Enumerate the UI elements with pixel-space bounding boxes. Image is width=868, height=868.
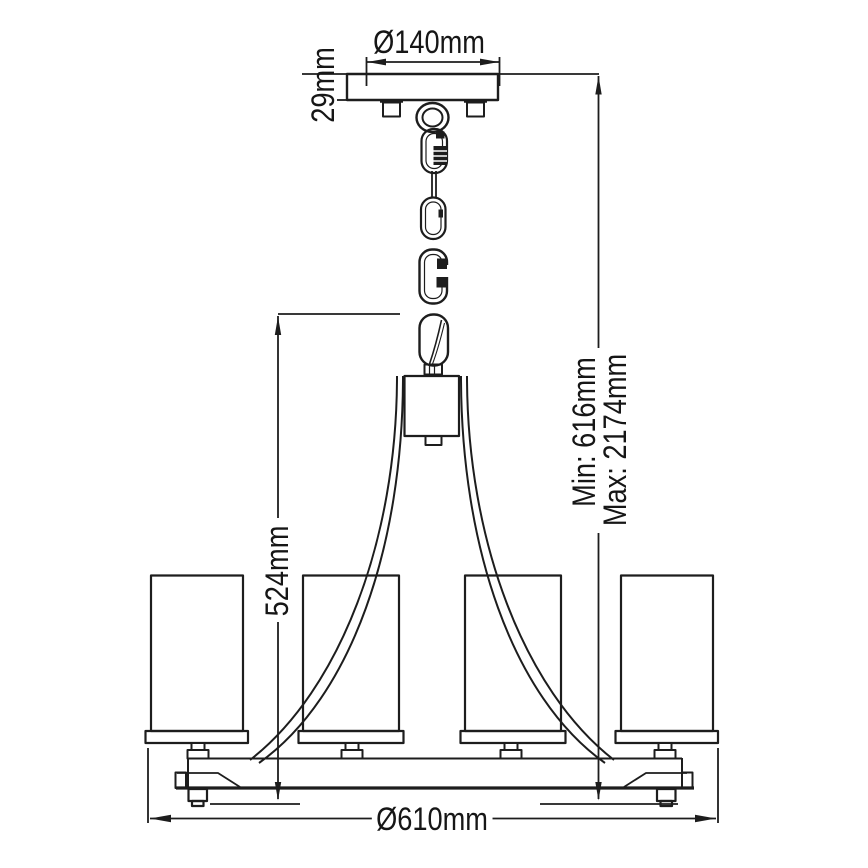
frame-ring [176, 758, 695, 789]
dim-label-body-height-text: 524mm [261, 526, 293, 617]
dim-label-max-drop-text: Max: 2174mm [599, 354, 631, 526]
dim-label-canopy-diameter-text: Ø140mm [373, 26, 485, 58]
chandelier-line-drawing [0, 0, 868, 868]
dim-label-canopy-diameter: Ø140mm [363, 26, 495, 58]
hub [405, 376, 460, 445]
finial-left [189, 789, 208, 806]
shade-1 [146, 576, 249, 744]
dim-label-canopy-height: 29mm [307, 41, 339, 130]
shade-4 [616, 576, 719, 744]
dim-label-max-drop: Max: 2174mm [599, 339, 631, 542]
dim-label-min-drop: Min: 616mm [568, 344, 600, 520]
technical-drawing: Ø140mm 29mm 524mm Min: 616mm Max: 2174mm… [0, 0, 868, 868]
dim-label-body-height: 524mm [261, 518, 293, 625]
chain-link [421, 198, 446, 240]
dim-label-min-drop-text: Min: 616mm [568, 357, 600, 507]
dim-label-fixture-diameter: Ø610mm [361, 803, 503, 835]
shade-3 [461, 576, 566, 744]
shade-2 [299, 576, 404, 744]
ceiling-canopy [302, 74, 599, 117]
dim-label-canopy-height-text: 29mm [307, 47, 339, 123]
hanging-loop [420, 315, 449, 366]
dim-label-fixture-diameter-text: Ø610mm [372, 803, 492, 835]
quick-link [422, 129, 448, 173]
dim-canopy-diameter [367, 57, 500, 86]
mounting-ring [417, 103, 449, 132]
chain-rod [432, 171, 436, 198]
carabiner-link [420, 250, 451, 304]
